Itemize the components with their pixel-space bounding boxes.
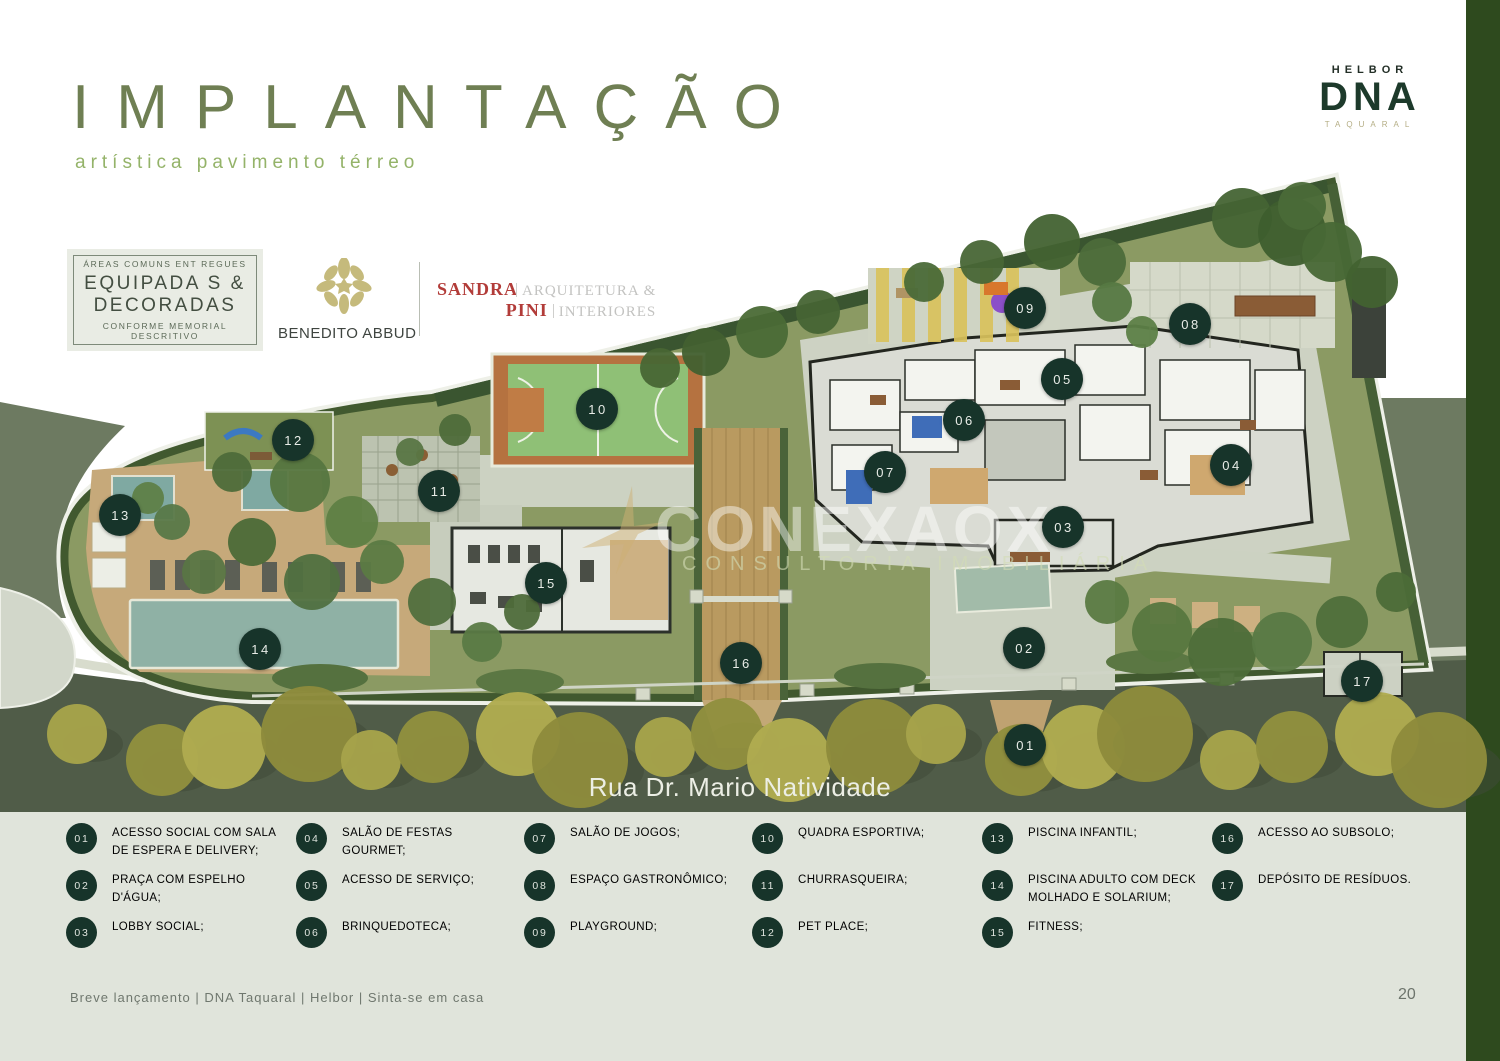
legend-number-badge: 06: [296, 917, 327, 948]
legend-label: LOBBY SOCIAL;: [112, 916, 204, 937]
legend-label: SALÃO DE JOGOS;: [570, 822, 680, 843]
legend-number-badge: 14: [982, 870, 1013, 901]
legend-item-08: 08ESPAÇO GASTRONÔMICO;: [524, 869, 742, 916]
legend-item-05: 05ACESSO DE SERVIÇO;: [296, 869, 514, 916]
legend-label: CHURRASQUEIRA;: [798, 869, 908, 890]
legend-column-4: 10QUADRA ESPORTIVA;11CHURRASQUEIRA;12PET…: [752, 822, 970, 963]
legend-column-2: 04SALÃO DE FESTAS GOURMET;05ACESSO DE SE…: [296, 822, 514, 963]
legend-label: ESPAÇO GASTRONÔMICO;: [570, 869, 727, 890]
legend-number-badge: 04: [296, 823, 327, 854]
legend-label: QUADRA ESPORTIVA;: [798, 822, 925, 843]
legend-label: ACESSO SOCIAL COM SALA DE ESPERA E DELIV…: [112, 822, 284, 861]
legend-column-1: 01ACESSO SOCIAL COM SALA DE ESPERA E DEL…: [66, 822, 284, 963]
legend-label: PLAYGROUND;: [570, 916, 657, 937]
legend-column-3: 07SALÃO DE JOGOS;08ESPAÇO GASTRONÔMICO;0…: [524, 822, 742, 963]
legend-label: PET PLACE;: [798, 916, 868, 937]
legend-item-01: 01ACESSO SOCIAL COM SALA DE ESPERA E DEL…: [66, 822, 284, 869]
legend-number-badge: 02: [66, 870, 97, 901]
footer-text: Breve lançamento | DNA Taquaral | Helbor…: [70, 990, 484, 1005]
legend-number-badge: 05: [296, 870, 327, 901]
legend-item-13: 13PISCINA INFANTIL;: [982, 822, 1200, 869]
legend-number-badge: 07: [524, 823, 555, 854]
legend-column-6: 16ACESSO AO SUBSOLO;17DEPÓSITO DE RESÍDU…: [1212, 822, 1430, 916]
legend-label: SALÃO DE FESTAS GOURMET;: [342, 822, 514, 861]
legend-number-badge: 09: [524, 917, 555, 948]
page-number: 20: [1398, 986, 1416, 1004]
legend-item-15: 15FITNESS;: [982, 916, 1200, 963]
legend-label: ACESSO AO SUBSOLO;: [1258, 822, 1394, 843]
legend-number-badge: 10: [752, 823, 783, 854]
street-name-label: Rua Dr. Mario Natividade: [460, 772, 1020, 803]
legend-item-10: 10QUADRA ESPORTIVA;: [752, 822, 970, 869]
legend-item-03: 03LOBBY SOCIAL;: [66, 916, 284, 963]
legend-number-badge: 12: [752, 917, 783, 948]
legend-number-badge: 15: [982, 917, 1013, 948]
legend-item-07: 07SALÃO DE JOGOS;: [524, 822, 742, 869]
legend-label: PISCINA ADULTO COM DECK MOLHADO E SOLARI…: [1028, 869, 1200, 908]
legend-number-badge: 08: [524, 870, 555, 901]
legend-number-badge: 17: [1212, 870, 1243, 901]
legend-label: BRINQUEDOTECA;: [342, 916, 451, 937]
legend-item-09: 09PLAYGROUND;: [524, 916, 742, 963]
legend-label: ACESSO DE SERVIÇO;: [342, 869, 474, 890]
legend-number-badge: 13: [982, 823, 1013, 854]
legend-item-06: 06BRINQUEDOTECA;: [296, 916, 514, 963]
legend-item-16: 16ACESSO AO SUBSOLO;: [1212, 822, 1430, 869]
legend-number-badge: 11: [752, 870, 783, 901]
legend-label: FITNESS;: [1028, 916, 1083, 937]
legend-label: PISCINA INFANTIL;: [1028, 822, 1137, 843]
legend-label: DEPÓSITO DE RESÍDUOS.: [1258, 869, 1411, 890]
legend-item-17: 17DEPÓSITO DE RESÍDUOS.: [1212, 869, 1430, 916]
legend: 01ACESSO SOCIAL COM SALA DE ESPERA E DEL…: [0, 822, 1466, 972]
legend-label: PRAÇA COM ESPELHO D'ÁGUA;: [112, 869, 284, 908]
legend-item-04: 04SALÃO DE FESTAS GOURMET;: [296, 822, 514, 869]
legend-item-14: 14PISCINA ADULTO COM DECK MOLHADO E SOLA…: [982, 869, 1200, 916]
legend-item-11: 11CHURRASQUEIRA;: [752, 869, 970, 916]
legend-number-badge: 01: [66, 823, 97, 854]
legend-number-badge: 03: [66, 917, 97, 948]
legend-column-5: 13PISCINA INFANTIL;14PISCINA ADULTO COM …: [982, 822, 1200, 963]
legend-item-02: 02PRAÇA COM ESPELHO D'ÁGUA;: [66, 869, 284, 916]
legend-item-12: 12PET PLACE;: [752, 916, 970, 963]
legend-number-badge: 16: [1212, 823, 1243, 854]
brochure-page: IMPLANTAÇÃO artística pavimento térreo H…: [0, 0, 1500, 1061]
